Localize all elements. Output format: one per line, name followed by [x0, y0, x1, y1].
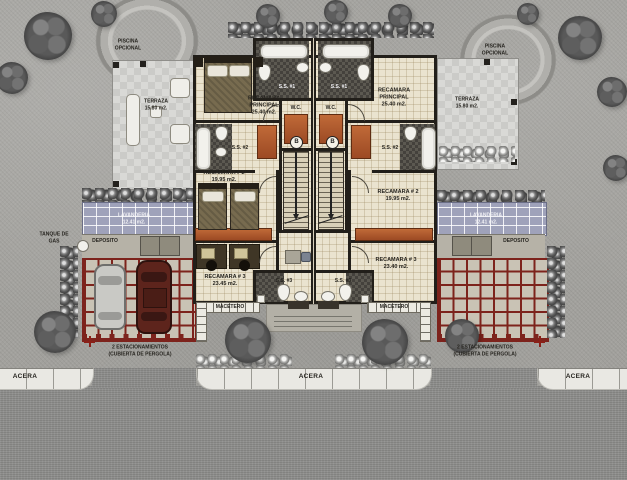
- stair-direction-label: B: [294, 139, 298, 145]
- stair-direction-badge-right: B: [326, 136, 339, 149]
- label-line: (CUBIERTA DE PERGOLA): [453, 351, 516, 358]
- label-ss3-right: S.S. #3: [335, 278, 351, 285]
- label-line: RECAMARA # 3: [204, 274, 245, 281]
- label-ss2-left: S.S. #2: [232, 145, 248, 152]
- label-line: W.C.: [326, 105, 337, 112]
- tree: [388, 4, 412, 28]
- label-line: 23.45 m2.: [204, 281, 245, 288]
- label-line: S.S. #3: [335, 278, 351, 285]
- entry-steps: [274, 316, 352, 330]
- nightstand: [194, 57, 203, 67]
- label-recamara-principal-right: RECAMARA PRINCIPAL 25.40 m2.: [378, 87, 410, 108]
- label-line: PRINCIPAL: [248, 102, 280, 109]
- terraza-post: [484, 59, 490, 65]
- desk-top-item: [201, 248, 215, 259]
- nightstand: [253, 57, 263, 67]
- macetero-left-vertical: [196, 302, 207, 342]
- tree: [91, 1, 117, 27]
- label-line: 25.40 m2.: [378, 102, 410, 109]
- driveway-right: [430, 368, 537, 388]
- label-line: 19.95 m2.: [203, 177, 244, 184]
- wall: [371, 38, 374, 100]
- pergola-corner-mark: [84, 336, 95, 347]
- hall-planter: [301, 252, 311, 262]
- party-wall: [311, 38, 316, 304]
- label-line: DEPOSITO: [92, 238, 118, 245]
- gas-tank: [77, 240, 89, 252]
- deposito-right-doors: [452, 236, 492, 256]
- tree: [256, 4, 280, 28]
- wall: [279, 230, 311, 233]
- label-line: OPCIONAL: [115, 45, 141, 52]
- label-recamara-principal-left: RECAMARA PRINCIPAL 25.40 m2.: [248, 95, 280, 116]
- tree: [362, 319, 408, 365]
- label-line: DEPOSITO: [503, 238, 529, 245]
- label-ss2-right: S.S. #2: [382, 145, 398, 152]
- label-line: 12.41 m2.: [118, 219, 150, 226]
- terraza-post: [140, 61, 146, 67]
- label-acera-right: ACERA: [566, 373, 591, 381]
- label-line: ACERA: [299, 373, 324, 381]
- wall: [316, 230, 348, 233]
- label-line: S.S. #3: [276, 278, 292, 285]
- pillow: [234, 191, 256, 202]
- label-line: S.S. #1: [279, 84, 295, 91]
- label-ss1-left: S.S. #1: [279, 84, 295, 91]
- label-line: 19.95 m2.: [377, 196, 418, 203]
- bathtub: [421, 127, 436, 170]
- label-recamara3-left: RECAMARA # 3 23.45 m2.: [204, 274, 245, 288]
- pillow: [229, 65, 250, 77]
- stair-direction-label: B: [330, 139, 334, 145]
- label-line: ACERA: [566, 373, 591, 381]
- label-line: RECAMARA # 2: [377, 189, 418, 196]
- label-line: S.S. #2: [232, 145, 248, 152]
- desk-chair: [206, 260, 217, 271]
- label-line: 15.80 m2.: [455, 103, 479, 110]
- label-line: W.C.: [291, 105, 302, 112]
- entry-door-left: [288, 301, 309, 309]
- tree: [324, 0, 348, 24]
- label-line: S.S. #2: [382, 145, 398, 152]
- pillow: [207, 65, 228, 77]
- label-line: RECAMARA # 2: [203, 170, 244, 177]
- label-line: LAVANDERIA: [118, 213, 150, 220]
- street: [0, 386, 627, 480]
- label-line: GAS: [39, 238, 68, 245]
- label-wc-left: W.C.: [291, 105, 302, 112]
- desk-chair: [239, 260, 250, 271]
- tree: [603, 155, 627, 181]
- car-light-windshield: [98, 276, 122, 285]
- stair-arrow-line: [330, 152, 332, 214]
- label-acera-center: ACERA: [299, 373, 324, 381]
- label-parking-left: 2 ESTACIONAMIENTOS (CUBIERTA DE PERGOLA): [108, 345, 171, 358]
- label-recamara3-right: RECAMARA # 3 23.40 m2.: [375, 257, 416, 271]
- hedge-left-wing: [82, 188, 193, 202]
- tree: [597, 77, 627, 107]
- tree: [24, 12, 72, 60]
- label-recamara2-right: RECAMARA # 2 19.95 m2.: [377, 189, 418, 203]
- macetero-right-vertical: [420, 302, 431, 342]
- patio-chair: [170, 78, 190, 98]
- label-line: PISCINA: [115, 39, 141, 46]
- label-acera-left: ACERA: [13, 373, 38, 381]
- closet-right: [351, 125, 371, 159]
- planting-column-right: [547, 246, 565, 338]
- sink: [215, 147, 227, 157]
- sink: [296, 62, 309, 73]
- desk-top-item: [234, 248, 248, 259]
- closet-left: [257, 125, 277, 159]
- label-piscina-left: PISCINA OPCIONAL: [115, 39, 141, 52]
- label-ss3-left: S.S. #3: [276, 278, 292, 285]
- hall-console: [285, 250, 301, 264]
- label-line: ACERA: [13, 373, 38, 381]
- wall: [372, 170, 437, 173]
- label-line: MACETERO: [216, 304, 245, 311]
- entry-door-right: [318, 301, 339, 309]
- label-piscina-right: PISCINA OPCIONAL: [482, 44, 508, 57]
- label-tanque-de-gas: TANQUE DE GAS: [39, 232, 68, 245]
- car-light-rear-window: [98, 312, 122, 320]
- driveway-left: [92, 368, 196, 388]
- label-line: TERRAZA: [455, 97, 479, 104]
- tree: [517, 3, 539, 25]
- label-line: RECAMARA: [378, 87, 410, 94]
- car-light: [94, 264, 126, 330]
- label-line: PRINCIPAL: [378, 94, 410, 101]
- label-terraza-right: TERRAZA 15.80 m2.: [455, 97, 479, 110]
- tree: [225, 317, 271, 363]
- lounge-chair: [126, 94, 140, 146]
- label-line: 15.80 m2.: [144, 105, 168, 112]
- tree: [558, 16, 602, 60]
- stair-direction-badge-left: B: [290, 136, 303, 149]
- label-line: LAVANDERIA: [470, 213, 502, 220]
- terraza-flower-bed: [439, 146, 515, 162]
- label-ss1-right: S.S. #1: [331, 84, 347, 91]
- terraza-post: [113, 62, 119, 68]
- stair-arrow-line: [295, 152, 297, 214]
- tree: [0, 62, 28, 94]
- label-line: RECAMARA: [248, 95, 280, 102]
- label-line: S.S. #1: [331, 84, 347, 91]
- label-line: 25.40 m2.: [248, 110, 280, 117]
- label-deposito-right: DEPOSITO: [503, 238, 529, 245]
- label-line: PISCINA: [482, 44, 508, 51]
- sink: [319, 62, 332, 73]
- label-line: 23.40 m2.: [375, 264, 416, 271]
- tree: [34, 311, 76, 353]
- pergola-posts-left: [82, 334, 193, 341]
- label-terraza-left: TERRAZA 15.80 m2.: [144, 99, 168, 112]
- site-plan: B B PISCINA OPCIONAL PISCINA OPCIONAL: [0, 0, 627, 480]
- label-line: 2 ESTACIONAMIENTOS: [108, 345, 171, 352]
- terraza-post: [511, 99, 517, 105]
- bathtub: [260, 44, 308, 59]
- label-macetero-right: MACETERO: [380, 304, 409, 311]
- label-macetero-left: MACETERO: [216, 304, 245, 311]
- car-dark-rear-window: [141, 312, 167, 321]
- label-line: 2 ESTACIONAMIENTOS: [453, 345, 516, 352]
- label-wc-right: W.C.: [326, 105, 337, 112]
- car-dark-windshield: [141, 272, 167, 282]
- terraza-post: [113, 181, 119, 187]
- deposito-left-doors: [140, 236, 180, 256]
- label-lavanderia-right: LAVANDERIA 12.41 m2.: [470, 213, 502, 226]
- label-line: RECAMARA # 3: [375, 257, 416, 264]
- label-line: MACETERO: [380, 304, 409, 311]
- pillow: [202, 191, 224, 202]
- bathtub: [196, 127, 211, 170]
- label-line: TANQUE DE: [39, 232, 68, 239]
- label-line: (CUBIERTA DE PERGOLA): [108, 351, 171, 358]
- headboard: [204, 56, 252, 63]
- patio-chair: [170, 124, 190, 144]
- label-line: 12.41 m2.: [470, 219, 502, 226]
- bathtub: [322, 44, 370, 59]
- label-parking-right: 2 ESTACIONAMIENTOS (CUBIERTA DE PERGOLA): [453, 345, 516, 358]
- label-lavanderia-left: LAVANDERIA 12.41 m2.: [118, 213, 150, 226]
- label-line: TERRAZA: [144, 99, 168, 106]
- car-dark-roof: [143, 288, 167, 308]
- label-deposito-left: DEPOSITO: [92, 238, 118, 245]
- closet-strip-right: [355, 228, 433, 241]
- pergola-corner-mark: [534, 336, 545, 347]
- label-line: OPCIONAL: [482, 50, 508, 57]
- label-recamara2-left: RECAMARA # 2 19.95 m2.: [203, 170, 244, 184]
